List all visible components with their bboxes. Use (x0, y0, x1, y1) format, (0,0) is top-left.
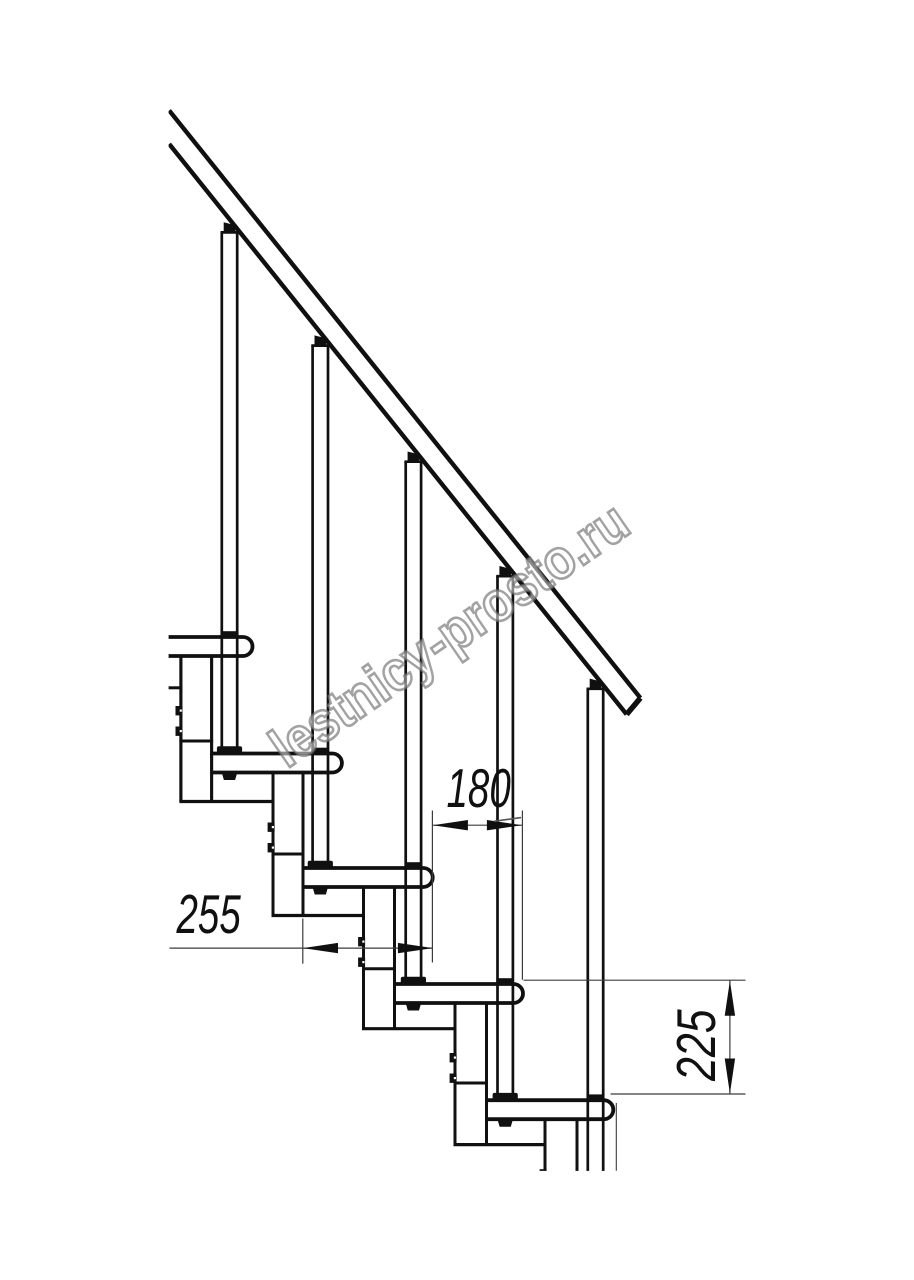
svg-text:255: 255 (176, 884, 242, 945)
svg-text:180: 180 (447, 758, 511, 819)
svg-text:225: 225 (666, 1009, 727, 1082)
